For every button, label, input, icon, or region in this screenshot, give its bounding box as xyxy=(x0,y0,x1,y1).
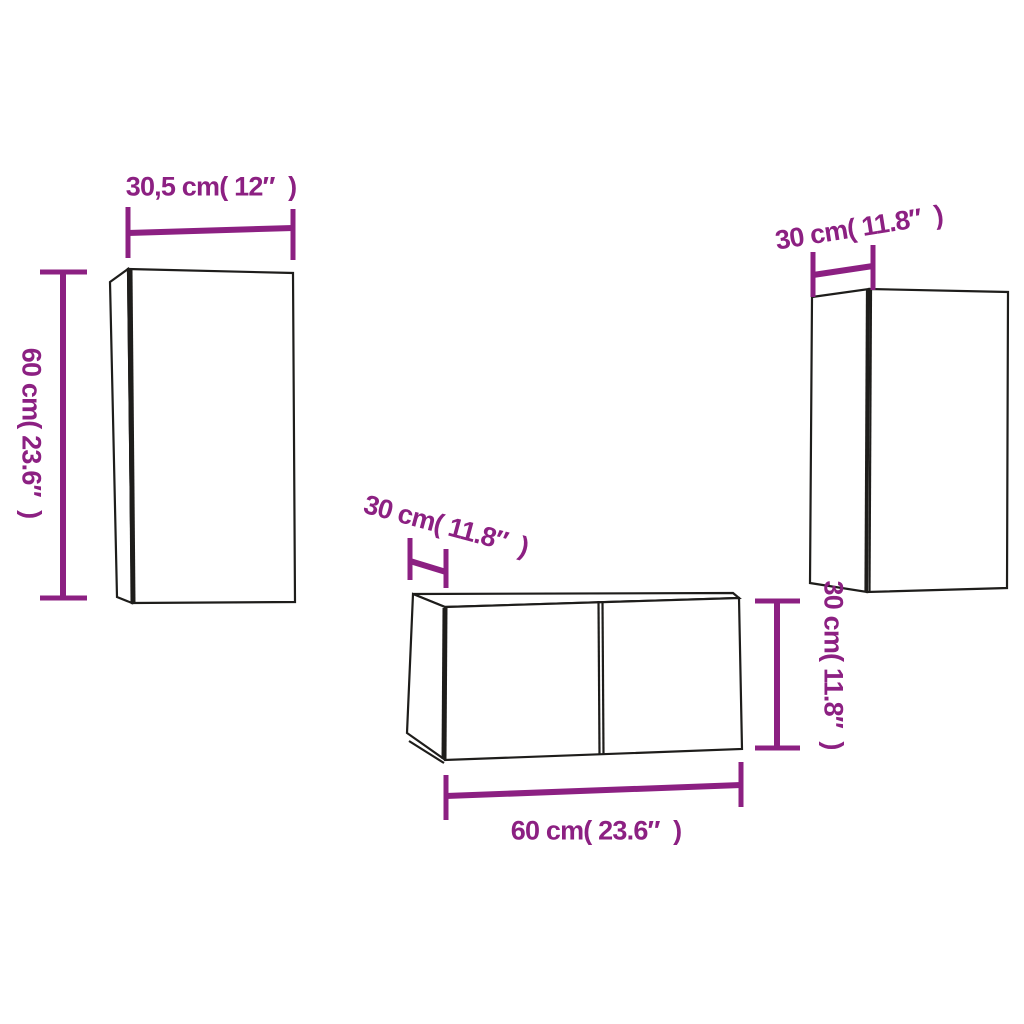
dim-left-cabinet-width xyxy=(128,207,293,260)
bench-door-seam-line-1 xyxy=(599,601,600,754)
left-cabinet-front-edge xyxy=(130,270,133,602)
bench-front-face xyxy=(445,598,742,760)
right-cabinet xyxy=(810,289,1008,592)
label-left-cabinet-width: 30,5 cm( 12″ ) xyxy=(126,174,297,201)
bench-door-seam-line-2 xyxy=(603,601,604,754)
furniture-diagram-svg xyxy=(0,0,1024,1024)
dim-bench-height xyxy=(755,601,800,748)
bench-front-edge xyxy=(444,608,445,759)
label-bench-width: 60 cm( 23.6″ ) xyxy=(511,818,682,845)
label-left-cabinet-height: 60 cm( 23.6″ ) xyxy=(18,348,45,519)
right-cabinet-side-face xyxy=(810,289,869,592)
dim-bench-depth xyxy=(410,538,446,588)
dimension-diagram: 30,5 cm( 12″ ) 60 cm( 23.6″ ) 30 cm( 11.… xyxy=(0,0,1024,1024)
left-cabinet-front-face xyxy=(128,269,295,603)
tv-bench xyxy=(407,593,742,763)
right-cabinet-seam-line-1 xyxy=(866,290,868,592)
label-bench-height: 30 cm( 11.8″ ) xyxy=(820,580,847,749)
dim-bench-width xyxy=(446,762,741,820)
right-cabinet-seam-line-2 xyxy=(870,290,872,592)
bench-side-face xyxy=(407,594,445,759)
left-cabinet xyxy=(110,269,295,603)
right-cabinet-front-face xyxy=(867,289,1008,592)
dim-left-cabinet-height xyxy=(40,272,87,598)
